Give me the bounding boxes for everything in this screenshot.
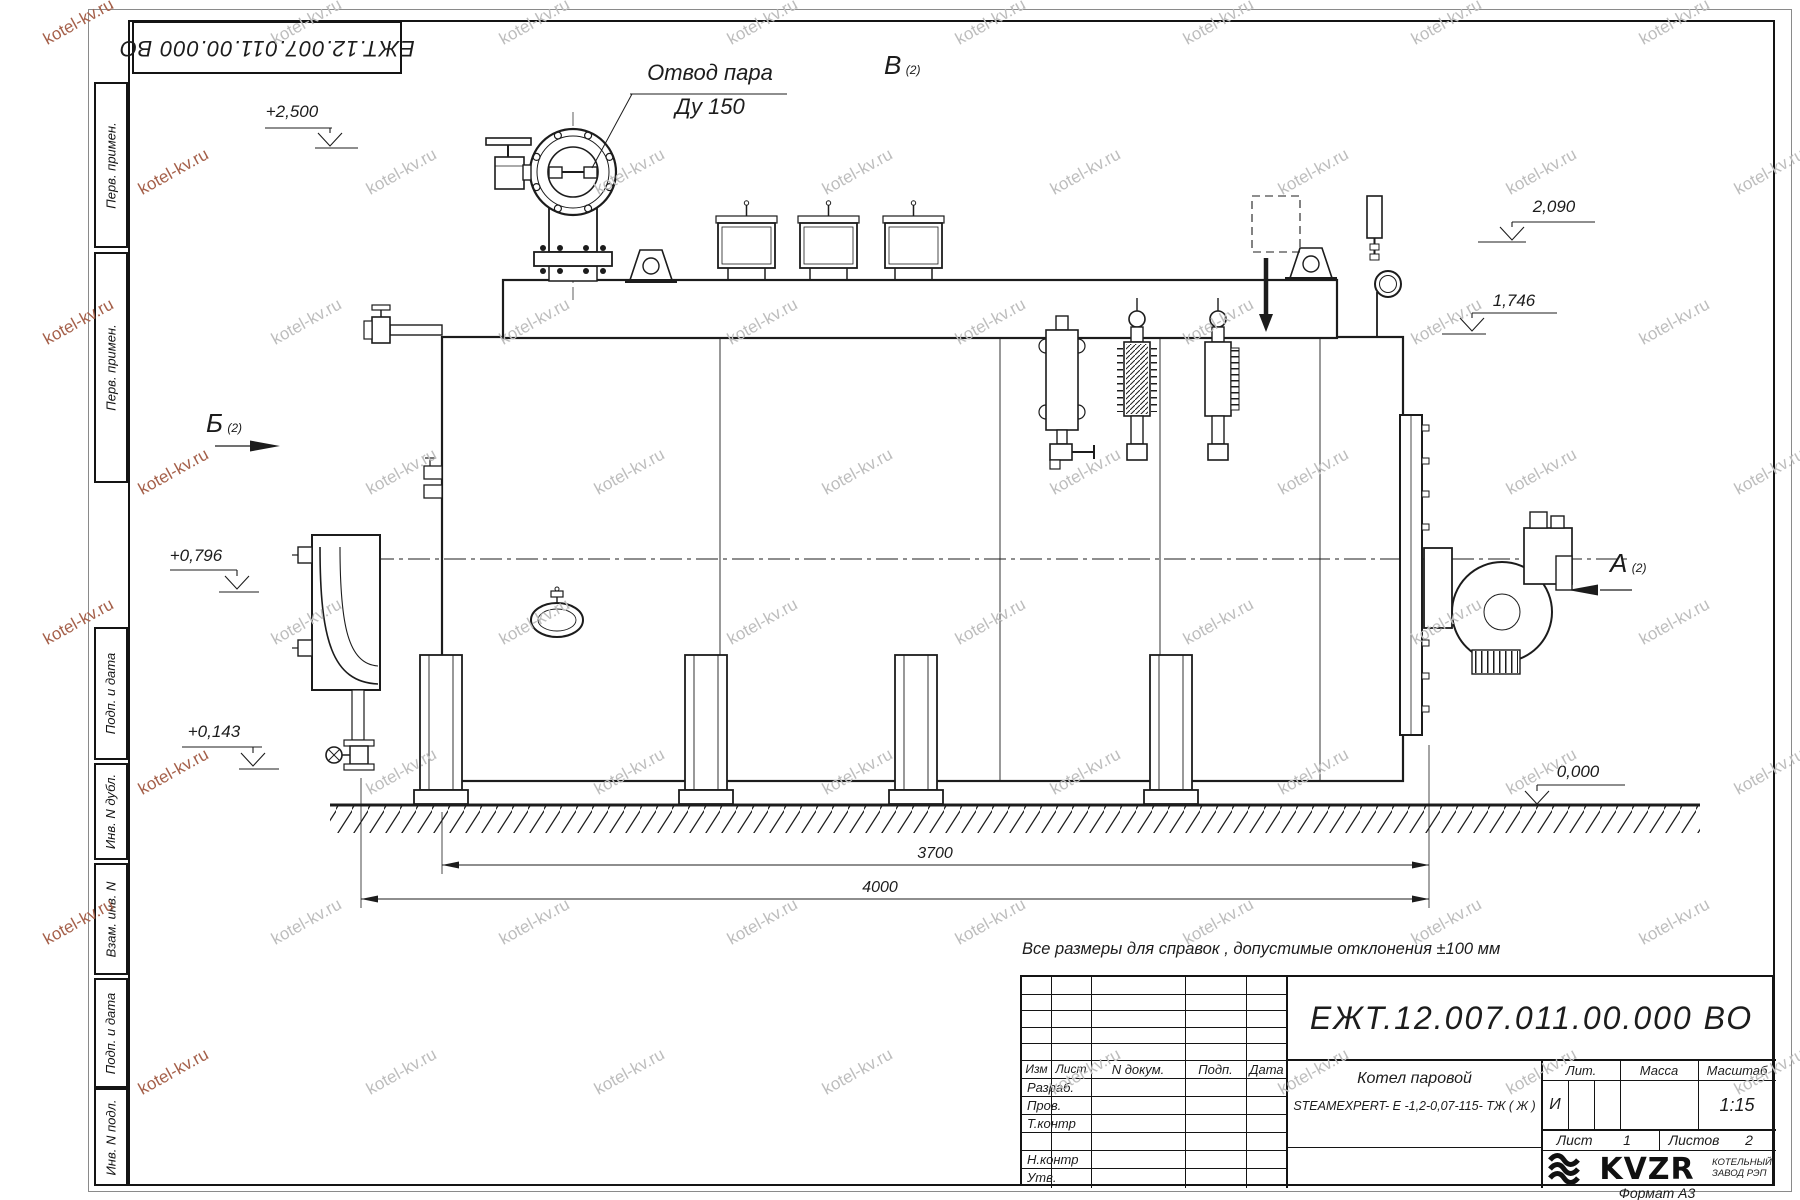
header-list: Лист <box>1051 1060 1091 1078</box>
row-razrab: Разраб. <box>1022 1078 1091 1096</box>
listov-value: 2 <box>1729 1130 1769 1150</box>
header-ndokum: N докум. <box>1091 1060 1185 1078</box>
elevation-0796: +0,796 <box>156 546 236 566</box>
drain-valve <box>326 690 374 770</box>
drum-hatch <box>883 201 944 280</box>
elevation-0143: +0,143 <box>174 722 254 742</box>
product-name-line1: Котел паровой <box>1287 1065 1542 1093</box>
support-skid <box>414 655 468 804</box>
steam-outlet-label-line1: Отвод пара <box>630 60 790 86</box>
body-left-stubs <box>424 458 442 498</box>
view-sub: (2) <box>227 421 242 435</box>
burner <box>1424 512 1572 674</box>
row-prov: Пров. <box>1022 1096 1091 1114</box>
elevation-2090: 2,090 <box>1514 197 1594 217</box>
header-masshtab: Масштаб <box>1698 1060 1776 1080</box>
support-skid <box>1144 655 1198 804</box>
kvzr-logo-icon <box>1546 1152 1582 1186</box>
dimension-4000-text: 4000 <box>840 879 920 897</box>
logo-caption-line1: КОТЕЛЬНЫЙ <box>1712 1157 1774 1168</box>
drawing-sheet: Перв. примен. Перв. примен. Подп. и дата… <box>0 0 1800 1200</box>
titleblock-designation: ЕЖТ.12.007.011.00.000 ВО <box>1287 977 1776 1059</box>
valve-handwheel <box>486 138 531 189</box>
support-skid <box>889 655 943 804</box>
masshtab-value: 1:15 <box>1698 1080 1776 1130</box>
kvzr-logo-text: KVZR <box>1582 1150 1712 1188</box>
view-letter: А <box>1610 548 1627 578</box>
view-letter: Б <box>206 408 223 438</box>
view-arrow-b <box>215 441 280 452</box>
drum-hatch <box>798 201 859 280</box>
view-label-v: В (2) <box>884 50 920 81</box>
format-label: Формат А3 <box>1540 1187 1774 1200</box>
header-podp: Подп. <box>1185 1060 1246 1078</box>
steam-outlet-valve <box>486 112 616 300</box>
logo-caption-line2: ЗАВОД РЭП <box>1712 1168 1774 1179</box>
lifting-lug <box>625 250 677 283</box>
support-skid <box>679 655 733 804</box>
header-massa: Масса <box>1620 1060 1698 1080</box>
lit-value: И <box>1542 1080 1568 1130</box>
drum-hatch <box>716 201 777 280</box>
elevation-1746: 1,746 <box>1475 291 1553 311</box>
elevation-0000: 0,000 <box>1540 762 1616 782</box>
row-utv: Утв. <box>1022 1168 1091 1187</box>
drum-hatches <box>716 201 944 280</box>
title-block: ЕЖТ.12.007.011.00.000 ВО Изм Лист N доку… <box>1020 975 1774 1186</box>
view-letter: В <box>884 50 901 80</box>
reference-note: Все размеры для справок , допустимые отк… <box>1022 940 1500 959</box>
product-name-line2: STEAMEXPERT- Е -1,2-0,07-115- ТЖ ( Ж ) <box>1287 1093 1542 1119</box>
view-label-a: А (2) <box>1610 548 1646 579</box>
elevation-2500: +2,500 <box>250 102 334 122</box>
header-lit: Лит. <box>1542 1060 1620 1080</box>
kvzr-logo-caption: КОТЕЛЬНЫЙ ЗАВОД РЭП <box>1712 1157 1774 1179</box>
pressure-gauge-siphon <box>1367 196 1401 337</box>
view-label-b: Б (2) <box>206 408 242 439</box>
header-data: Дата <box>1246 1060 1287 1078</box>
steam-outlet-label-line2: Ду 150 <box>630 94 790 120</box>
view-sub: (2) <box>1632 561 1647 575</box>
row-nkontr: Н.контр <box>1022 1150 1091 1168</box>
left-top-valve <box>364 305 442 343</box>
front-smoke-box <box>292 535 380 770</box>
header-izm: Изм <box>1022 1060 1051 1078</box>
view-arrow-a <box>1568 585 1632 596</box>
ground-line <box>330 805 1700 833</box>
dimension-3700-text: 3700 <box>895 845 975 863</box>
list-value: 1 <box>1607 1130 1647 1150</box>
list-label: Лист <box>1542 1130 1607 1150</box>
lifting-lug <box>1285 248 1337 281</box>
listov-label: Листов <box>1659 1130 1729 1150</box>
row-blank <box>1022 1132 1091 1150</box>
row-tkontr: Т.контр <box>1022 1114 1091 1132</box>
view-sub: (2) <box>906 63 921 77</box>
